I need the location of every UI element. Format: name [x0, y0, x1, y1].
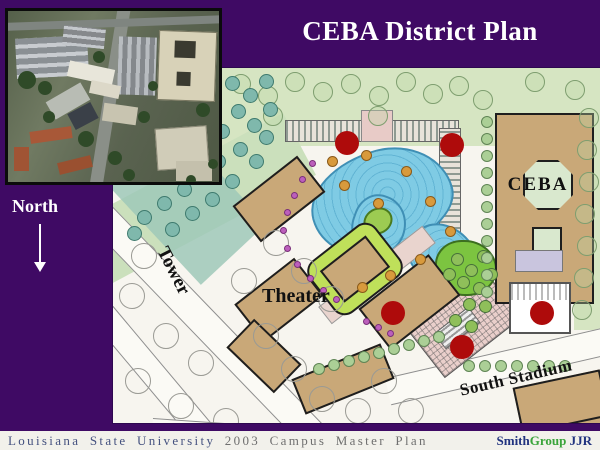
- tree-icon: [38, 81, 52, 95]
- slide-title: CEBA District Plan: [240, 16, 600, 47]
- red-marker: [335, 131, 359, 155]
- tree-icon: [368, 106, 388, 126]
- tree-icon: [137, 210, 152, 225]
- tree-icon: [153, 323, 179, 349]
- paving-stripes: [511, 284, 569, 300]
- flower-icon: [284, 209, 291, 216]
- hedge-icon: [481, 167, 493, 179]
- hedge-icon: [481, 269, 493, 281]
- hedge-icon: [481, 133, 493, 145]
- footer-university: Louisiana State University: [8, 433, 215, 448]
- tree-icon: [78, 131, 94, 147]
- tree-icon: [425, 196, 436, 207]
- tree-icon: [451, 253, 464, 266]
- hedge-icon: [481, 218, 493, 230]
- tree-icon: [465, 320, 478, 333]
- tree-icon: [575, 204, 595, 224]
- tree-icon: [127, 226, 142, 241]
- tree-icon: [373, 198, 384, 209]
- tree-icon: [196, 103, 210, 117]
- hedge-icon: [481, 252, 493, 264]
- tree-icon: [369, 86, 389, 106]
- tree-icon: [415, 254, 426, 265]
- tree-icon: [479, 300, 492, 313]
- flower-icon: [294, 261, 301, 268]
- tree-icon: [123, 169, 135, 181]
- tree-icon: [281, 356, 307, 382]
- tree-icon: [93, 51, 105, 63]
- hedge-icon: [481, 116, 493, 128]
- flower-icon: [375, 324, 382, 331]
- red-marker: [530, 301, 554, 325]
- tree-icon: [579, 108, 599, 128]
- tree-icon: [18, 71, 36, 89]
- tree-icon: [577, 140, 597, 160]
- red-marker: [440, 133, 464, 157]
- tree-icon: [423, 84, 443, 104]
- hedge-icon: [313, 363, 325, 375]
- flower-icon: [309, 160, 316, 167]
- tree-icon: [259, 130, 274, 145]
- photo-red-roof-building: [14, 147, 29, 171]
- hedge-icon: [328, 359, 340, 371]
- tree-icon: [309, 386, 335, 412]
- tree-icon: [449, 314, 462, 327]
- tree-icon: [225, 174, 240, 189]
- photo-courtyard: [174, 41, 196, 59]
- hedge-icon: [479, 360, 491, 372]
- tree-icon: [361, 150, 372, 161]
- tree-icon: [263, 102, 278, 117]
- footer-title: Louisiana State University 2003 Campus M…: [8, 433, 428, 449]
- tree-icon: [572, 300, 592, 320]
- tree-icon: [579, 172, 599, 192]
- hedge-icon: [481, 235, 493, 247]
- tree-icon: [125, 368, 151, 394]
- tree-icon: [371, 368, 397, 394]
- tree-icon: [138, 111, 150, 123]
- hedge-icon: [373, 347, 385, 359]
- hedge-icon: [481, 184, 493, 196]
- tree-icon: [565, 80, 585, 100]
- tree-icon: [108, 151, 122, 165]
- flower-icon: [387, 330, 394, 337]
- tree-icon: [205, 192, 220, 207]
- tree-icon: [577, 236, 597, 256]
- smithgroup-jjr-logo: SmithGroup JJR: [497, 433, 592, 449]
- tree-icon: [457, 276, 470, 289]
- hedge-icon: [481, 201, 493, 213]
- tree-icon: [233, 142, 248, 157]
- tree-icon: [157, 196, 172, 211]
- tree-icon: [231, 268, 257, 294]
- tree-icon: [443, 268, 456, 281]
- map-label-ceba: CEBA: [495, 174, 581, 196]
- tree-icon: [243, 88, 258, 103]
- tree-icon: [449, 76, 469, 96]
- north-indicator: North: [12, 196, 82, 286]
- hedge-icon: [433, 331, 445, 343]
- red-marker: [381, 301, 405, 325]
- footer-plan: 2003 Campus Master Plan: [225, 433, 428, 448]
- hedge-icon: [463, 360, 475, 372]
- aerial-photo-inset: [5, 8, 222, 185]
- north-arrowhead-icon: [34, 262, 46, 272]
- tree-icon: [259, 74, 274, 89]
- tree-icon: [313, 82, 333, 102]
- tree-icon: [525, 72, 545, 92]
- tree-icon: [396, 72, 416, 92]
- tree-icon: [119, 283, 145, 309]
- tree-icon: [188, 350, 214, 376]
- building: [515, 250, 563, 272]
- slide: CEBA District Plan: [0, 0, 600, 450]
- tree-icon: [385, 270, 396, 281]
- tree-icon: [357, 282, 368, 293]
- tree-icon: [341, 74, 361, 94]
- tree-icon: [231, 104, 246, 119]
- tree-icon: [43, 111, 55, 123]
- hedge-icon: [481, 286, 493, 298]
- flower-icon: [299, 176, 306, 183]
- flower-icon: [291, 192, 298, 199]
- tree-icon: [327, 156, 338, 167]
- hedge-icon: [358, 351, 370, 363]
- red-marker: [450, 335, 474, 359]
- photo-parking-lot: [62, 25, 106, 49]
- tree-icon: [401, 166, 412, 177]
- tree-icon: [445, 226, 456, 237]
- tree-icon: [225, 76, 240, 91]
- north-arrow-icon: [39, 224, 41, 264]
- logo-smith: Smith: [497, 433, 530, 448]
- hedge-icon: [403, 339, 415, 351]
- hedge-icon: [388, 343, 400, 355]
- tree-icon: [574, 268, 594, 288]
- tree-icon: [148, 81, 158, 91]
- footer-bar: Louisiana State University 2003 Campus M…: [0, 431, 600, 450]
- tree-icon: [263, 230, 289, 256]
- flower-icon: [284, 245, 291, 252]
- photo-red-roof-building: [29, 126, 72, 144]
- tree-icon: [339, 180, 350, 191]
- tree-icon: [213, 408, 239, 423]
- logo-jjr: JJR: [566, 433, 592, 448]
- tree-icon: [247, 118, 262, 133]
- tree-icon: [465, 264, 478, 277]
- tree-icon: [473, 90, 493, 110]
- tree-icon: [185, 206, 200, 221]
- tree-icon: [463, 298, 476, 311]
- tree-icon: [186, 175, 196, 185]
- hedge-icon: [418, 335, 430, 347]
- tree-icon: [345, 398, 371, 423]
- flower-icon: [307, 275, 314, 282]
- photo-ceba-building: [157, 30, 217, 102]
- logo-group: Group: [530, 433, 567, 448]
- tree-icon: [398, 398, 424, 423]
- north-label: North: [12, 196, 82, 217]
- flower-icon: [363, 318, 370, 325]
- hedge-icon: [481, 150, 493, 162]
- photo-courtyard: [176, 72, 190, 86]
- tree-icon: [285, 72, 305, 92]
- tree-icon: [249, 154, 264, 169]
- flower-icon: [333, 296, 340, 303]
- tree-icon: [253, 323, 279, 349]
- photo-red-roof-building: [57, 155, 93, 175]
- tree-icon: [168, 393, 194, 419]
- hedge-icon: [343, 355, 355, 367]
- tree-icon: [208, 159, 218, 169]
- flower-icon: [280, 227, 287, 234]
- map-label-theater: Theater: [262, 285, 330, 308]
